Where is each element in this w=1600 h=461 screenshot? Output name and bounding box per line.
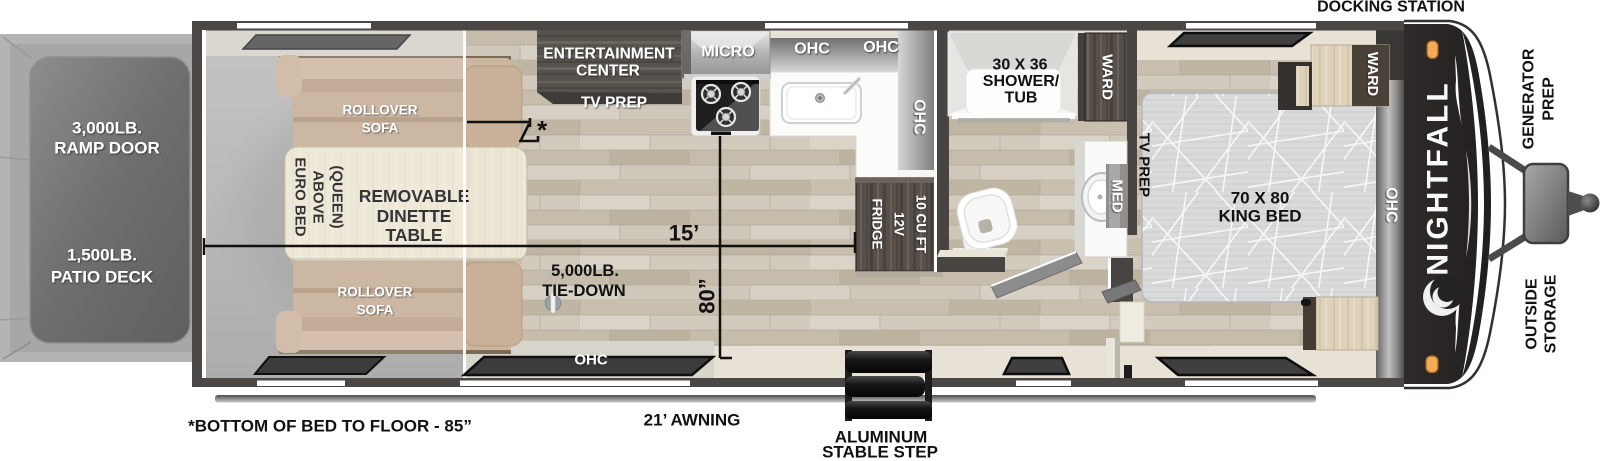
svg-text:MICRO: MICRO bbox=[701, 44, 754, 61]
svg-text:WARD: WARD bbox=[1099, 54, 1116, 100]
svg-text:10 CU FT: 10 CU FT bbox=[914, 195, 929, 254]
svg-text:GENERATOR: GENERATOR bbox=[1521, 48, 1538, 149]
svg-text:MED: MED bbox=[1109, 179, 1126, 213]
svg-text:PREP: PREP bbox=[1541, 77, 1558, 121]
svg-text:NIGHTFALL: NIGHTFALL bbox=[1422, 80, 1455, 275]
svg-text:21’ AWNING: 21’ AWNING bbox=[644, 411, 741, 430]
svg-text:FRIDGE: FRIDGE bbox=[870, 198, 885, 249]
svg-text:15’: 15’ bbox=[669, 221, 700, 246]
svg-text:RAMP DOOR: RAMP DOOR bbox=[54, 139, 159, 158]
svg-text:30 X 36: 30 X 36 bbox=[992, 57, 1047, 74]
svg-text:SHOWER/: SHOWER/ bbox=[983, 73, 1060, 90]
svg-text:*BOTTOM OF BED TO FLOOR - 85”: *BOTTOM OF BED TO FLOOR - 85” bbox=[188, 417, 472, 436]
svg-text:PATIO DECK: PATIO DECK bbox=[51, 268, 154, 287]
svg-text:12V: 12V bbox=[892, 212, 907, 236]
svg-text:TIE-DOWN: TIE-DOWN bbox=[542, 282, 625, 300]
svg-text:OHC: OHC bbox=[1383, 187, 1400, 223]
svg-text:KING BED: KING BED bbox=[1218, 207, 1301, 226]
svg-text:WARD: WARD bbox=[1364, 52, 1380, 96]
svg-text:TV PREP: TV PREP bbox=[581, 95, 647, 112]
svg-text:*: * bbox=[537, 115, 548, 145]
svg-text:1,500LB.: 1,500LB. bbox=[67, 246, 137, 265]
svg-text:OHC: OHC bbox=[863, 39, 899, 56]
svg-text:ENTERTAINMENT: ENTERTAINMENT bbox=[543, 46, 675, 63]
svg-text:3,000LB.: 3,000LB. bbox=[72, 119, 142, 138]
svg-text:STABLE STEP: STABLE STEP bbox=[822, 443, 938, 461]
svg-text:OHC: OHC bbox=[911, 99, 928, 135]
svg-text:70 X 80: 70 X 80 bbox=[1231, 189, 1290, 208]
svg-text:TV PREP: TV PREP bbox=[1136, 133, 1153, 197]
svg-text:STORAGE: STORAGE bbox=[1543, 274, 1560, 353]
svg-text:80”: 80” bbox=[695, 278, 720, 313]
svg-text:CENTER: CENTER bbox=[576, 63, 640, 80]
svg-text:TUB: TUB bbox=[1005, 90, 1038, 107]
svg-text:DOCKING STATION: DOCKING STATION bbox=[1317, 0, 1465, 16]
svg-text:OHC: OHC bbox=[794, 41, 830, 58]
svg-text:5,000LB.: 5,000LB. bbox=[551, 262, 619, 280]
svg-text:OHC: OHC bbox=[574, 352, 608, 369]
svg-text:OUTSIDE: OUTSIDE bbox=[1524, 278, 1541, 349]
